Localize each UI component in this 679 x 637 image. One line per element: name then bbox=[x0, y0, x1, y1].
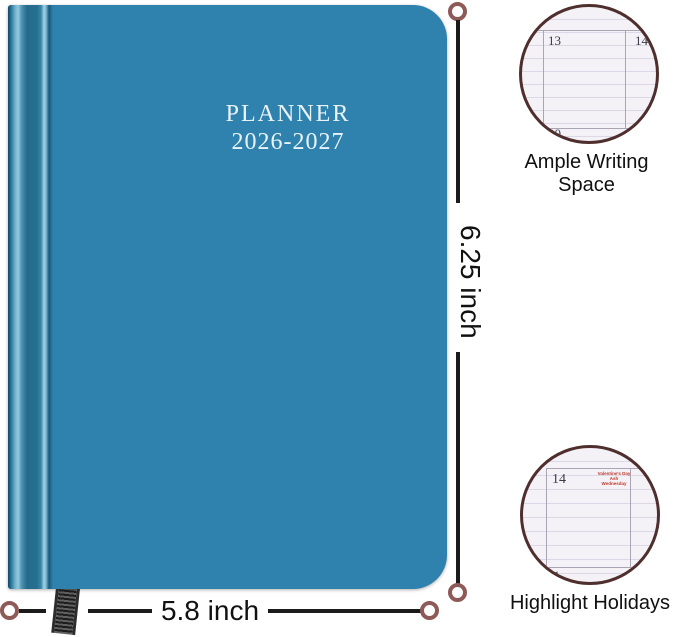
holiday-note: Valentine's Day Ash Wednesday bbox=[597, 471, 631, 486]
calendar-day-14: 14 bbox=[552, 472, 566, 488]
dimension-endpoint-ring-left bbox=[0, 601, 19, 620]
callout-holidays-circle: 14 Valentine's Day Ash Wednesday 21 bbox=[520, 445, 660, 585]
height-dimension-line-upper bbox=[456, 20, 460, 203]
width-dimension-line-segment-c bbox=[268, 609, 421, 613]
height-dimension-line-lower bbox=[456, 352, 460, 584]
planner-cover: PLANNER 2026-2027 bbox=[8, 5, 447, 589]
calendar-cell-left-border bbox=[546, 468, 547, 567]
planner-title: PLANNER 2026-2027 bbox=[168, 100, 408, 156]
calendar-cell-right-border bbox=[625, 30, 626, 128]
width-dimension-label: 5.8 inch bbox=[152, 595, 268, 627]
calendar-day-20: 20 bbox=[548, 126, 561, 142]
holiday-line2: Ash Wednesday bbox=[597, 476, 631, 486]
calendar-day-14: 14 bbox=[635, 33, 648, 49]
callout-label-writing-space: Ample Writing Space bbox=[494, 151, 679, 197]
calendar-cell-bottom-border bbox=[522, 128, 656, 129]
calendar-cell-left-border bbox=[543, 30, 544, 128]
planner-spine bbox=[8, 5, 54, 589]
calendar-cell-bottom-border bbox=[523, 567, 657, 568]
calendar-day-13: 13 bbox=[548, 33, 561, 49]
width-dimension-line-segment-a bbox=[19, 609, 46, 613]
callout-writing-space-circle: 13 14 20 bbox=[519, 4, 659, 144]
height-dimension-label: 6.25 inch bbox=[452, 212, 488, 352]
planner-title-line1: PLANNER bbox=[168, 100, 408, 128]
planner-title-line2: 2026-2027 bbox=[168, 128, 408, 156]
calendar-day-21: 21 bbox=[547, 568, 560, 584]
calendar-cell-top-border bbox=[546, 468, 657, 469]
width-dimension-line-segment-b bbox=[88, 609, 152, 613]
callout-label-holidays: Highlight Holidays bbox=[498, 592, 679, 615]
dimension-endpoint-ring-top bbox=[448, 2, 467, 21]
product-dimension-diagram: PLANNER 2026-2027 6.25 inch 5.8 inch 13 … bbox=[0, 0, 679, 637]
dimension-endpoint-ring-bottom bbox=[448, 583, 467, 602]
dimension-endpoint-ring-right bbox=[420, 601, 439, 620]
